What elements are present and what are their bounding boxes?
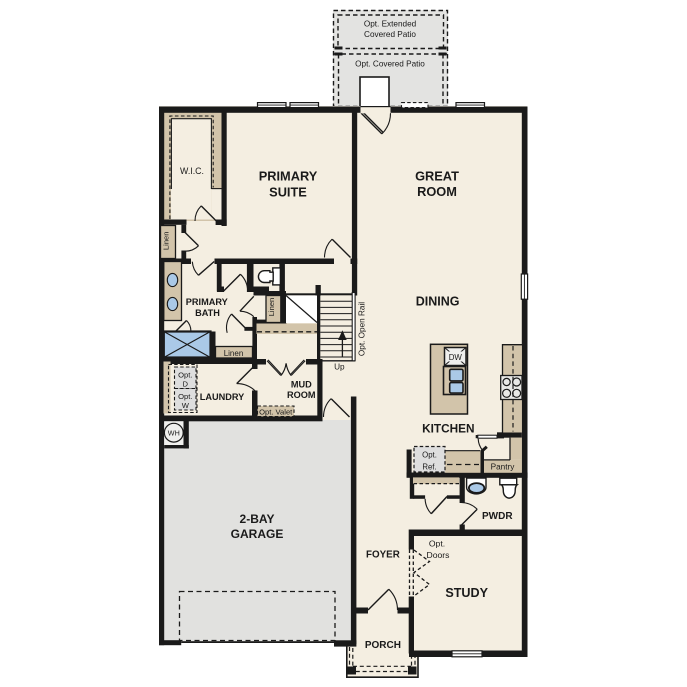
svg-text:Doors: Doors (427, 550, 450, 560)
svg-text:WH: WH (168, 429, 180, 438)
svg-text:STUDY: STUDY (445, 586, 488, 600)
svg-text:Pantry: Pantry (491, 463, 516, 472)
svg-text:Linen: Linen (267, 298, 276, 317)
svg-text:MUD: MUD (291, 379, 312, 389)
svg-text:Opt. Covered Patio: Opt. Covered Patio (355, 60, 425, 69)
svg-text:DINING: DINING (416, 294, 460, 308)
svg-text:Up: Up (334, 363, 345, 372)
svg-text:Linen: Linen (224, 349, 244, 358)
svg-text:ROOM: ROOM (417, 184, 457, 199)
svg-text:KITCHEN: KITCHEN (422, 422, 474, 436)
svg-text:GREAT: GREAT (415, 169, 459, 184)
svg-text:2-BAY: 2-BAY (240, 512, 275, 526)
svg-text:DW: DW (449, 353, 463, 362)
svg-text:Ref.: Ref. (422, 463, 436, 472)
svg-text:Opt.: Opt. (422, 451, 437, 460)
svg-text:PRIMARY: PRIMARY (186, 297, 228, 307)
svg-text:Opt.: Opt. (429, 539, 445, 549)
svg-text:Opt. Open Rail: Opt. Open Rail (358, 302, 367, 356)
svg-text:GARAGE: GARAGE (231, 527, 284, 541)
svg-text:PWDR: PWDR (482, 511, 513, 522)
svg-text:Covered Patio: Covered Patio (364, 30, 416, 39)
svg-text:PRIMARY: PRIMARY (259, 169, 318, 184)
svg-text:FOYER: FOYER (366, 550, 400, 561)
svg-text:Opt.: Opt. (178, 371, 192, 380)
svg-text:PORCH: PORCH (365, 640, 401, 651)
svg-text:Linen: Linen (161, 232, 170, 251)
svg-text:BATH: BATH (195, 308, 220, 318)
svg-text:Opt. Extended: Opt. Extended (364, 20, 417, 29)
svg-text:SUITE: SUITE (269, 185, 307, 200)
svg-text:ROOM: ROOM (287, 390, 316, 400)
svg-text:Opt.: Opt. (178, 392, 192, 401)
svg-text:W.I.C.: W.I.C. (180, 166, 204, 176)
svg-text:D: D (183, 379, 189, 388)
svg-text:LAUNDRY: LAUNDRY (200, 392, 245, 402)
svg-text:Opt. Valet: Opt. Valet (259, 408, 293, 417)
svg-text:W: W (182, 401, 190, 410)
